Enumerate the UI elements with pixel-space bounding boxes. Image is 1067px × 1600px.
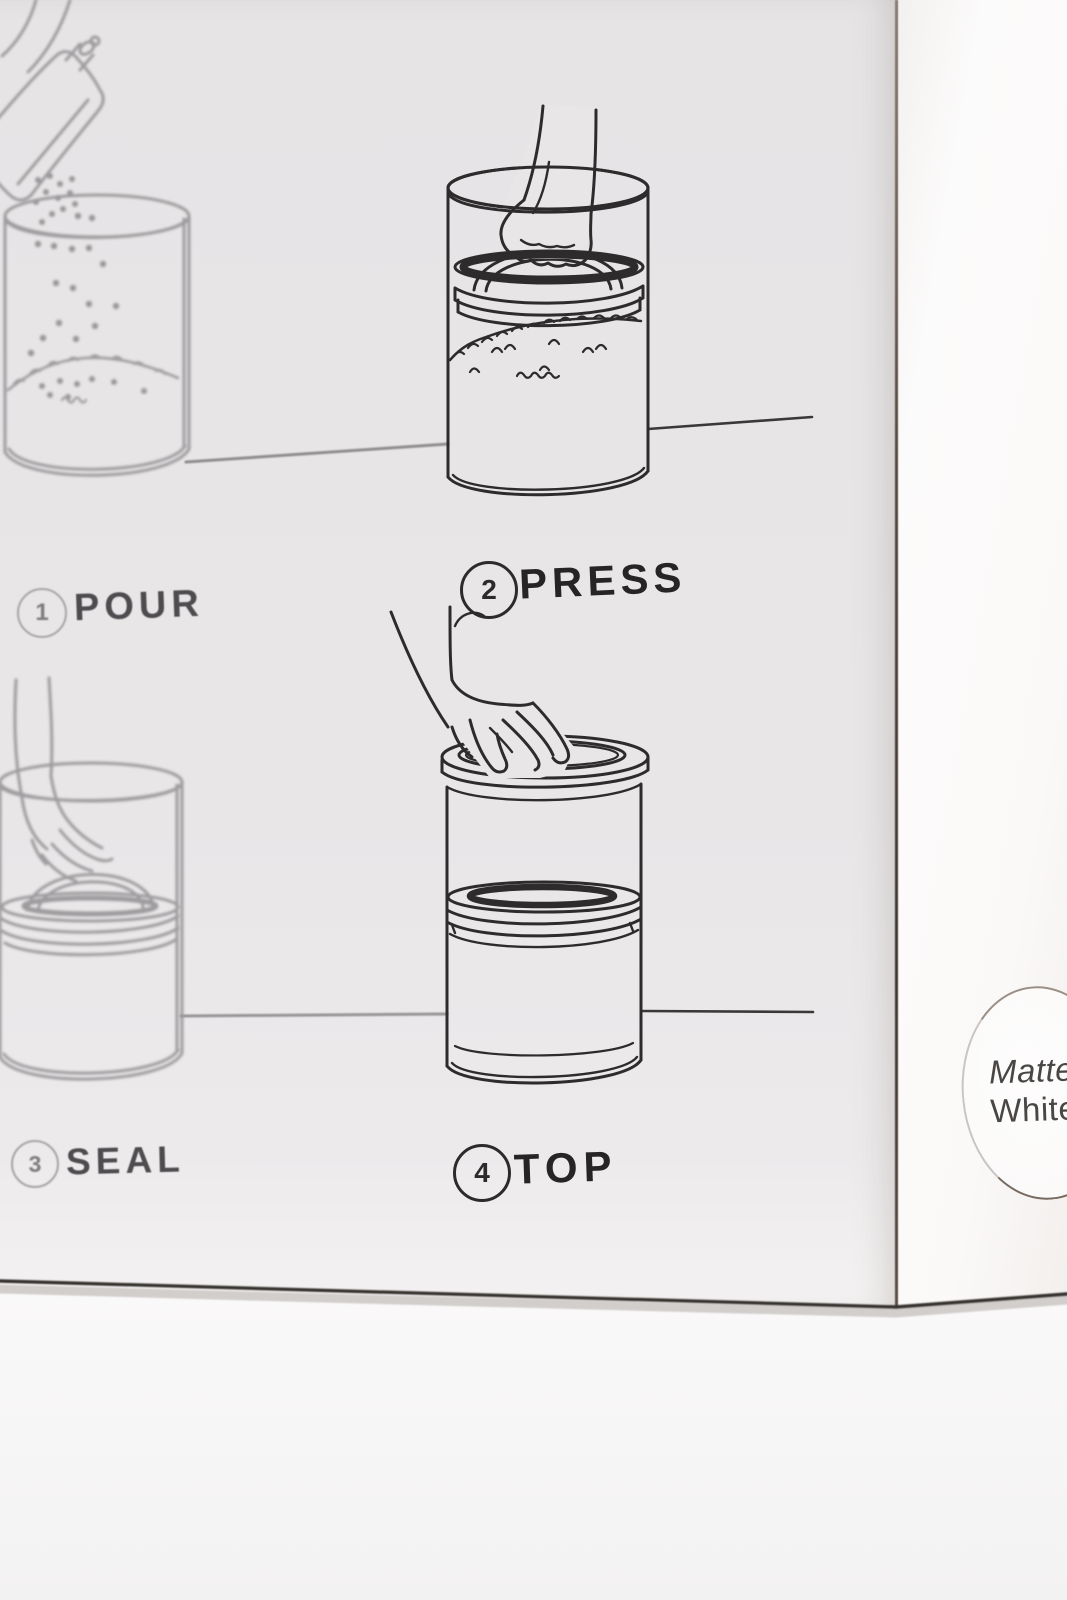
sticker-finish-line1: Matte [988,1049,1067,1091]
sticker-finish-line2: White [990,1088,1067,1130]
top-hand [390,606,575,778]
table-line-top [186,417,812,462]
step-3-badge: 3 [11,1140,59,1188]
step-4-label: TOP [513,1142,618,1194]
seal-illustration [0,678,182,1079]
instruction-line-art [0,0,1067,1600]
step-2-number: 2 [481,574,497,606]
top-illustration [390,606,648,1083]
box-bottom-edge [0,1281,1067,1313]
table-line-bottom [181,1011,813,1016]
step-4-number: 4 [474,1157,490,1189]
sticker-text: Matte White [988,1049,1067,1130]
step-1-number: 1 [35,599,48,627]
step-3-label: SEAL [65,1138,185,1183]
press-illustration [448,104,648,495]
step-1-badge: 1 [17,588,67,638]
press-hand [499,104,598,266]
step-2-label: PRESS [518,553,687,608]
step-1-label: POUR [73,583,204,631]
step-3-number: 3 [29,1151,42,1178]
photo-backdrop: 1 POUR 2 PRESS 3 SEAL 4 TOP Matte White [0,0,1067,1600]
step-4-badge: 4 [453,1144,511,1202]
step-2-badge: 2 [460,561,518,619]
pour-illustration [0,0,189,475]
